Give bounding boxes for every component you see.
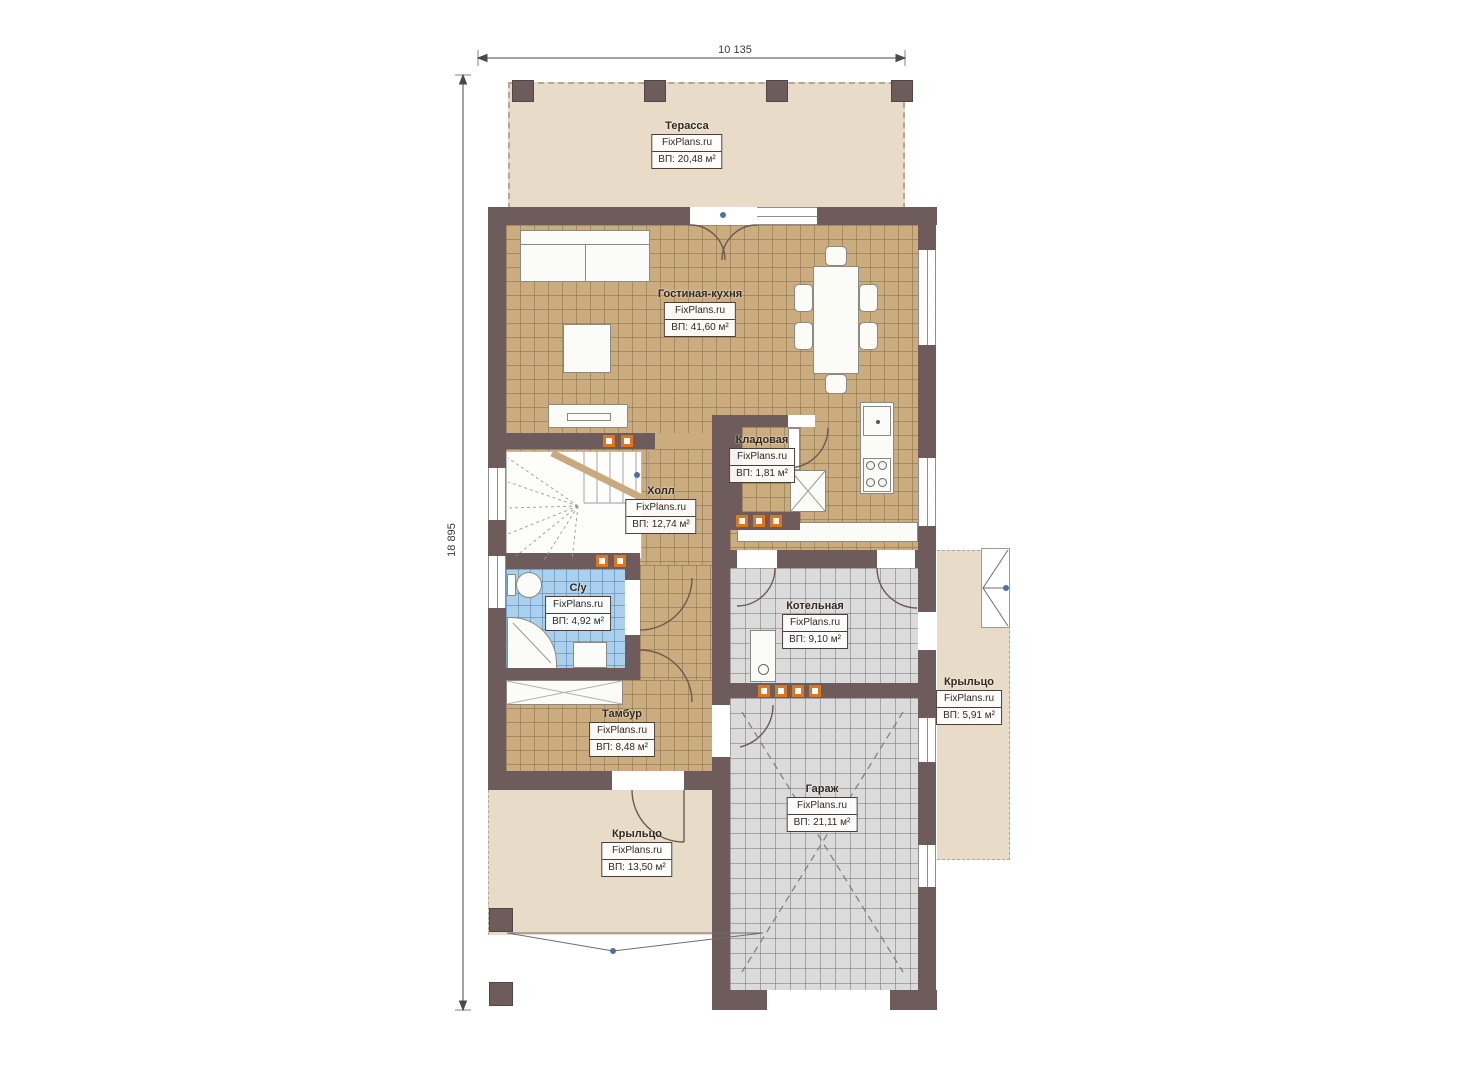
room-area: ВП: 13,50 м² (602, 859, 671, 876)
room-info-box: FixPlans.ru ВП: 5,91 м² (936, 690, 1002, 725)
tv-stand (548, 404, 628, 428)
room-name: Тамбур (589, 708, 655, 720)
reference-dot (720, 212, 726, 218)
room-area: ВП: 41,60 м² (665, 319, 734, 336)
storage-door-opening (788, 415, 815, 427)
vent (809, 685, 821, 697)
room-area: ВП: 5,91 м² (937, 707, 1001, 724)
bathroom-door-opening (625, 580, 640, 635)
vent (753, 515, 765, 527)
vent (736, 515, 748, 527)
fridge (790, 470, 826, 512)
room-name: Кладовая (729, 434, 795, 446)
room-name: Гостиная-кухня (658, 288, 742, 300)
boiler-door-opening (877, 550, 915, 568)
brand-link: FixPlans.ru (730, 449, 794, 465)
room-name: Терасса (651, 120, 722, 132)
room-info-box: FixPlans.ru ВП: 12,74 м² (625, 499, 696, 534)
garage-side-door-opening (712, 705, 730, 757)
room-info-box: FixPlans.ru ВП: 8,48 м² (589, 722, 655, 757)
boiler-dial (758, 664, 769, 675)
staircase (506, 451, 642, 559)
vent (621, 435, 633, 447)
chair (794, 284, 813, 312)
window (918, 250, 936, 345)
room-label-porch-right: Крыльцо FixPlans.ru ВП: 5,91 м² (936, 676, 1002, 725)
room-label-boiler: Котельная FixPlans.ru ВП: 9,10 м² (782, 600, 848, 649)
chair (825, 374, 847, 394)
room-info-box: FixPlans.ru ВП: 20,48 м² (651, 134, 722, 169)
room-label-storage: Кладовая FixPlans.ru ВП: 1,81 м² (729, 434, 795, 483)
terrace-post (644, 80, 666, 102)
room-area: ВП: 1,81 м² (730, 465, 794, 482)
terrace-post (766, 80, 788, 102)
entrance-door-opening (612, 771, 684, 790)
vent (770, 515, 782, 527)
porch-post (489, 908, 513, 932)
washer (573, 642, 607, 668)
room-info-box: FixPlans.ru ВП: 1,81 м² (729, 448, 795, 483)
room-name: Холл (625, 485, 696, 497)
boiler-porch-door-opening (918, 612, 936, 650)
room-name: С/у (545, 582, 611, 594)
wall (712, 790, 730, 1010)
boiler-door-opening (737, 550, 777, 568)
stove-burner (878, 478, 887, 487)
room-name: Гараж (787, 783, 858, 795)
wardrobe (506, 680, 623, 705)
dining-table (813, 266, 859, 374)
brand-link: FixPlans.ru (788, 798, 857, 814)
reference-dot (610, 948, 616, 954)
chair (825, 246, 847, 266)
chair (794, 322, 813, 350)
brand-link: FixPlans.ru (652, 135, 721, 151)
room-label-hall: Холл FixPlans.ru ВП: 12,74 м² (625, 485, 696, 534)
room-label-terrace: Терасса FixPlans.ru ВП: 20,48 м² (651, 120, 722, 169)
boiler-unit (750, 630, 776, 682)
window (488, 468, 506, 520)
window (918, 845, 936, 887)
stove-burner (866, 478, 875, 487)
brand-link: FixPlans.ru (626, 500, 695, 516)
tv (567, 413, 611, 421)
garage-gate-opening (767, 990, 890, 1010)
vent (596, 555, 608, 567)
room-area: ВП: 4,92 м² (546, 613, 610, 630)
room-area: ВП: 9,10 м² (783, 631, 847, 648)
room-label-bathroom: С/у FixPlans.ru ВП: 4,92 м² (545, 582, 611, 631)
reference-dot (1003, 585, 1009, 591)
room-info-box: FixPlans.ru ВП: 13,50 м² (601, 842, 672, 877)
brand-link: FixPlans.ru (602, 843, 671, 859)
room-info-box: FixPlans.ru ВП: 41,60 м² (664, 302, 735, 337)
vent (792, 685, 804, 697)
window (918, 458, 936, 526)
room-area: ВП: 21,11 м² (788, 814, 857, 831)
chair (859, 284, 878, 312)
vent (603, 435, 615, 447)
terrace-post (891, 80, 913, 102)
stove-burner (866, 461, 875, 470)
corridor-floor (640, 565, 712, 680)
room-info-box: FixPlans.ru ВП: 21,11 м² (787, 797, 858, 832)
sink-drain (876, 420, 880, 424)
hall-passage (655, 433, 712, 449)
kitchen-sink (863, 406, 891, 436)
room-info-box: FixPlans.ru ВП: 9,10 м² (782, 614, 848, 649)
room-area: ВП: 20,48 м² (652, 151, 721, 168)
toilet-tank (507, 574, 516, 596)
porch-post (489, 982, 513, 1006)
toilet-bowl (516, 572, 542, 598)
reference-dot (634, 472, 640, 478)
dimension-width-label: 10 135 (718, 44, 752, 56)
brand-link: FixPlans.ru (937, 691, 1001, 707)
room-area: ВП: 12,74 м² (626, 516, 695, 533)
room-label-vestibule: Тамбур FixPlans.ru ВП: 8,48 м² (589, 708, 655, 757)
sofa-split (585, 245, 586, 281)
brand-link: FixPlans.ru (546, 597, 610, 613)
chair (859, 322, 878, 350)
stove-burner (878, 461, 887, 470)
floor-plan: 10 135 18 895 Терасса FixPlans.ru ВП: 20… (0, 0, 1474, 1080)
room-info-box: FixPlans.ru ВП: 4,92 м² (545, 596, 611, 631)
window (757, 207, 817, 225)
window (918, 718, 936, 762)
room-label-porch-bottom: Крыльцо FixPlans.ru ВП: 13,50 м² (601, 828, 672, 877)
sofa-back (521, 231, 649, 245)
vent (758, 685, 770, 697)
dimension-height-label: 18 895 (446, 523, 458, 557)
sofa (520, 230, 650, 282)
room-name: Крыльцо (936, 676, 1002, 688)
brand-link: FixPlans.ru (590, 723, 654, 739)
room-name: Котельная (782, 600, 848, 612)
room-area: ВП: 8,48 м² (590, 739, 654, 756)
vent (775, 685, 787, 697)
room-label-living-kitchen: Гостиная-кухня FixPlans.ru ВП: 41,60 м² (658, 288, 742, 337)
vent (614, 555, 626, 567)
coffee-table (563, 324, 611, 373)
window (488, 556, 506, 608)
room-label-garage: Гараж FixPlans.ru ВП: 21,11 м² (787, 783, 858, 832)
brand-link: FixPlans.ru (665, 303, 734, 319)
brand-link: FixPlans.ru (783, 615, 847, 631)
room-name: Крыльцо (601, 828, 672, 840)
garage-floor (730, 698, 918, 990)
terrace-post (512, 80, 534, 102)
wall (506, 668, 640, 680)
